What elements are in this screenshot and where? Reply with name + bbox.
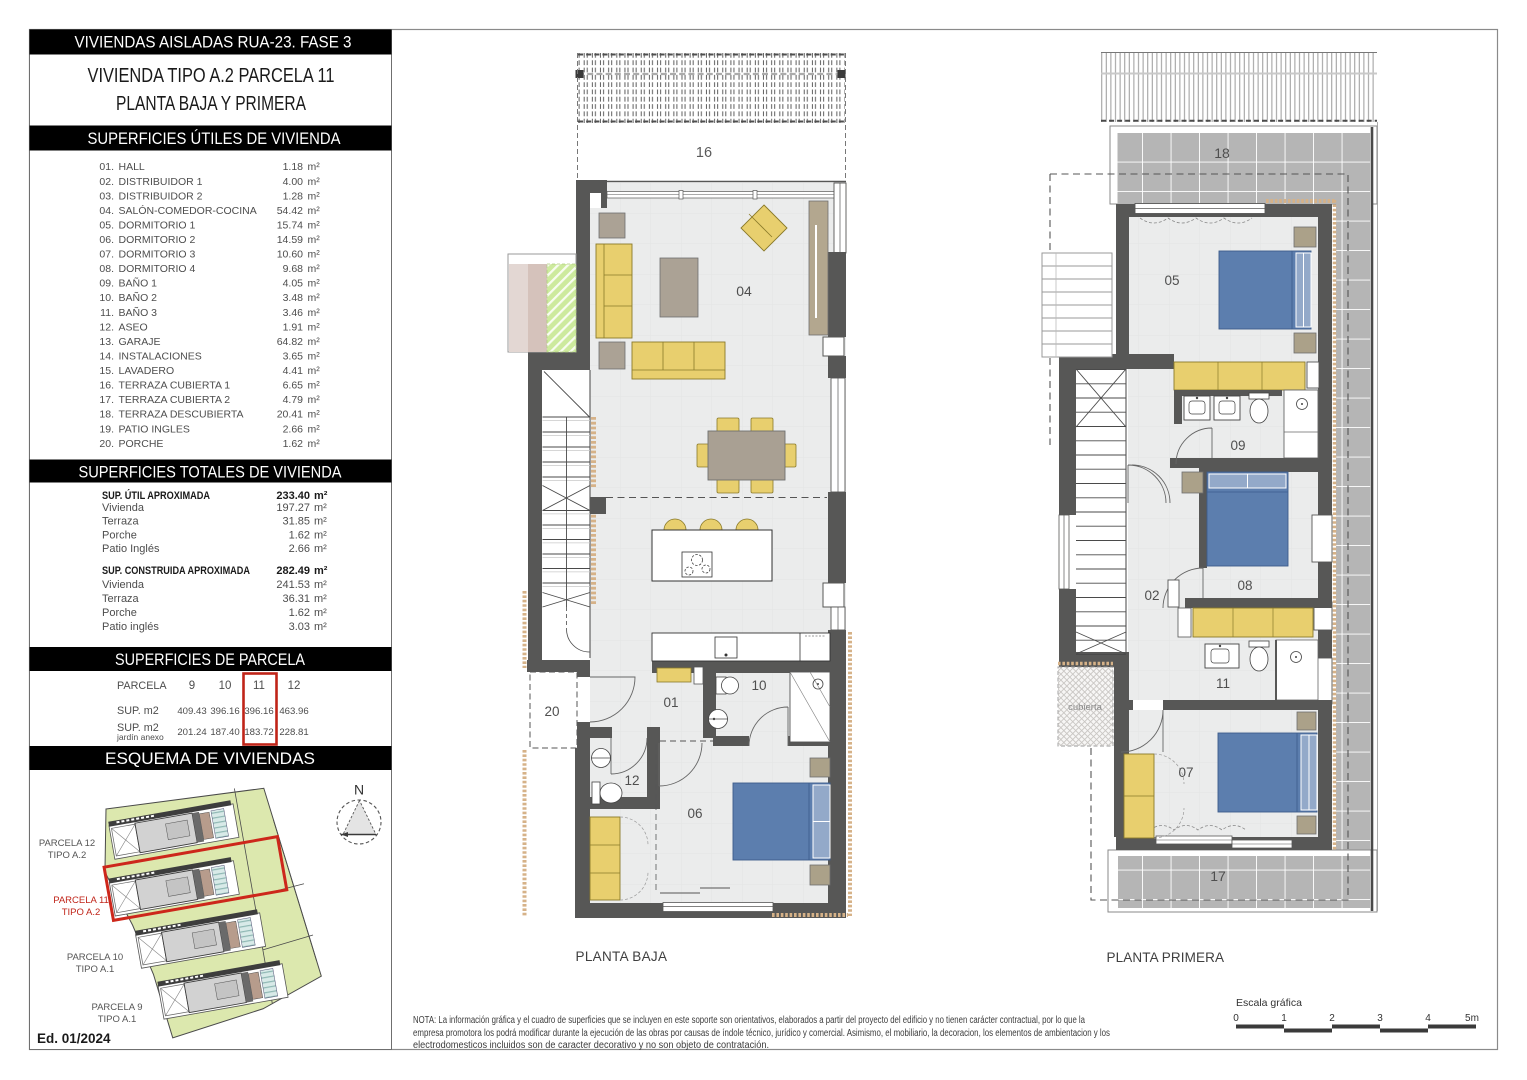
svg-text:TIPO A.2: TIPO A.2 — [62, 907, 101, 918]
svg-text:2.66: 2.66 — [289, 543, 310, 555]
svg-text:02.: 02. — [99, 176, 114, 188]
svg-text:SALÓN-COMEDOR-COCINA: SALÓN-COMEDOR-COCINA — [119, 204, 257, 217]
svg-text:SUP. m2: SUP. m2 — [117, 705, 159, 717]
svg-text:m²: m² — [308, 249, 321, 261]
svg-text:1.18: 1.18 — [283, 161, 304, 173]
svg-text:m²: m² — [308, 234, 321, 246]
svg-text:396.16: 396.16 — [210, 706, 239, 717]
svg-text:6.65: 6.65 — [283, 380, 304, 392]
svg-text:08: 08 — [1237, 578, 1252, 593]
svg-text:1.62: 1.62 — [289, 607, 310, 619]
svg-text:Ed. 01/2024: Ed. 01/2024 — [37, 1031, 111, 1046]
svg-text:m²: m² — [308, 205, 321, 217]
svg-text:06.: 06. — [99, 234, 114, 246]
svg-text:TERRAZA CUBIERTA 1: TERRAZA CUBIERTA 1 — [119, 380, 231, 392]
svg-text:Patio Inglés: Patio Inglés — [102, 543, 160, 555]
svg-text:04: 04 — [736, 283, 752, 299]
svg-text:3.46: 3.46 — [283, 307, 304, 319]
svg-text:TIPO A.2: TIPO A.2 — [48, 850, 87, 861]
svg-text:9: 9 — [189, 680, 195, 692]
svg-text:15.74: 15.74 — [277, 219, 303, 231]
svg-text:PATIO INGLES: PATIO INGLES — [119, 423, 190, 435]
svg-text:m²: m² — [308, 307, 321, 319]
svg-text:3: 3 — [1377, 1013, 1383, 1024]
svg-text:09: 09 — [1230, 438, 1245, 453]
svg-text:ASEO: ASEO — [119, 321, 148, 333]
svg-text:14.59: 14.59 — [277, 234, 303, 246]
svg-text:1.62: 1.62 — [283, 438, 304, 450]
svg-text:PORCHE: PORCHE — [119, 438, 164, 450]
svg-text:07.: 07. — [99, 249, 114, 261]
svg-text:PARCELA 12: PARCELA 12 — [39, 838, 95, 849]
svg-text:04.: 04. — [99, 205, 114, 217]
svg-text:12.: 12. — [99, 321, 114, 333]
svg-text:NOTA: La información gráfica y: NOTA: La información gráfica y el cuadro… — [413, 1015, 1085, 1026]
svg-text:BAÑO 3: BAÑO 3 — [119, 306, 158, 319]
svg-text:GARAJE: GARAJE — [119, 336, 161, 348]
svg-text:INSTALACIONES: INSTALACIONES — [119, 351, 202, 363]
svg-text:PLANTA BAJA: PLANTA BAJA — [576, 949, 669, 964]
svg-text:VIVIENDA TIPO A.2 PARCELA 11: VIVIENDA TIPO A.2 PARCELA 11 — [88, 65, 335, 87]
svg-text:14.: 14. — [99, 351, 114, 363]
svg-text:m²: m² — [308, 190, 321, 202]
svg-text:m²: m² — [314, 502, 327, 514]
svg-text:4.05: 4.05 — [283, 278, 304, 290]
svg-text:06: 06 — [687, 806, 702, 821]
svg-text:09.: 09. — [99, 278, 114, 290]
svg-text:2: 2 — [1329, 1013, 1335, 1024]
svg-text:m²: m² — [314, 565, 328, 577]
svg-text:m²: m² — [308, 321, 321, 333]
svg-text:Porche: Porche — [102, 530, 137, 542]
svg-text:m²: m² — [314, 530, 327, 542]
svg-text:16.: 16. — [99, 380, 114, 392]
svg-text:11: 11 — [1216, 676, 1230, 691]
svg-text:1.62: 1.62 — [289, 530, 310, 542]
svg-text:0: 0 — [1233, 1013, 1239, 1024]
svg-text:m²: m² — [314, 593, 327, 605]
svg-text:DISTRIBUIDOR 1: DISTRIBUIDOR 1 — [119, 176, 203, 188]
svg-text:20.41: 20.41 — [277, 409, 303, 421]
svg-text:12: 12 — [288, 680, 301, 692]
svg-text:4.00: 4.00 — [283, 176, 304, 188]
svg-text:10.: 10. — [99, 292, 114, 304]
svg-text:m²: m² — [308, 365, 321, 377]
svg-text:07: 07 — [1178, 765, 1193, 780]
svg-text:m²: m² — [314, 543, 327, 555]
svg-text:Vivienda: Vivienda — [102, 579, 145, 591]
svg-text:08.: 08. — [99, 263, 114, 275]
svg-text:396.16: 396.16 — [244, 706, 273, 717]
svg-text:electrodomesticos incluidos so: electrodomesticos incluidos son de carac… — [413, 1040, 769, 1051]
svg-text:PLANTA BAJA Y PRIMERA: PLANTA BAJA Y PRIMERA — [116, 93, 307, 115]
svg-text:PARCELA 11: PARCELA 11 — [53, 895, 109, 906]
svg-text:m²: m² — [308, 351, 321, 363]
svg-text:SUPERFICIES ÚTILES DE VIVIENDA: SUPERFICIES ÚTILES DE VIVIENDA — [88, 129, 342, 148]
svg-text:DORMITORIO 2: DORMITORIO 2 — [119, 234, 196, 246]
svg-text:DORMITORIO 3: DORMITORIO 3 — [119, 249, 196, 261]
svg-text:3.48: 3.48 — [283, 292, 304, 304]
svg-text:02: 02 — [1144, 588, 1159, 603]
svg-text:LAVADERO: LAVADERO — [119, 365, 175, 377]
svg-text:PARCELA 10: PARCELA 10 — [67, 952, 123, 963]
svg-text:m²: m² — [308, 423, 321, 435]
svg-text:m²: m² — [314, 579, 327, 591]
svg-text:Porche: Porche — [102, 607, 137, 619]
svg-text:m²: m² — [308, 380, 321, 392]
svg-text:m²: m² — [308, 278, 321, 290]
svg-text:463.96: 463.96 — [279, 706, 308, 717]
svg-text:3.03: 3.03 — [289, 621, 310, 633]
svg-text:m²: m² — [314, 490, 328, 502]
svg-text:5m: 5m — [1465, 1013, 1479, 1024]
svg-text:1.91: 1.91 — [283, 321, 304, 333]
svg-text:Terraza: Terraza — [102, 516, 140, 528]
svg-text:03.: 03. — [99, 190, 114, 202]
svg-text:17.: 17. — [99, 394, 114, 406]
svg-text:9.68: 9.68 — [283, 263, 304, 275]
svg-text:m²: m² — [308, 219, 321, 231]
svg-text:05: 05 — [1164, 273, 1179, 288]
svg-text:m²: m² — [308, 161, 321, 173]
svg-text:64.82: 64.82 — [277, 336, 303, 348]
svg-text:228.81: 228.81 — [279, 727, 308, 738]
svg-text:TERRAZA CUBIERTA 2: TERRAZA CUBIERTA 2 — [119, 394, 231, 406]
svg-text:233.40: 233.40 — [276, 490, 310, 502]
svg-text:TIPO A.1: TIPO A.1 — [98, 1014, 137, 1025]
svg-text:PARCELA 9: PARCELA 9 — [91, 1002, 142, 1013]
svg-text:4: 4 — [1425, 1013, 1431, 1024]
svg-text:jardín anexo: jardín anexo — [116, 732, 164, 742]
svg-text:2.66: 2.66 — [283, 423, 304, 435]
svg-text:11.: 11. — [100, 307, 114, 319]
svg-text:BAÑO 1: BAÑO 1 — [119, 277, 158, 290]
svg-text:197.27: 197.27 — [276, 502, 310, 514]
svg-text:19.: 19. — [99, 423, 114, 435]
svg-text:m²: m² — [308, 263, 321, 275]
svg-text:12: 12 — [624, 773, 639, 788]
svg-text:SUPERFICIES DE PARCELA: SUPERFICIES DE PARCELA — [115, 650, 306, 669]
svg-text:18.: 18. — [99, 409, 114, 421]
svg-text:201.24: 201.24 — [177, 727, 207, 738]
svg-text:DORMITORIO 4: DORMITORIO 4 — [119, 263, 196, 275]
svg-text:10: 10 — [219, 680, 232, 692]
svg-text:11: 11 — [253, 680, 265, 692]
svg-text:m²: m² — [314, 516, 327, 528]
svg-text:10: 10 — [751, 678, 766, 693]
svg-text:1: 1 — [1281, 1013, 1287, 1024]
svg-text:empresa promotora los podrá mo: empresa promotora los podrá modificar du… — [413, 1028, 1110, 1039]
svg-text:36.31: 36.31 — [282, 593, 310, 605]
svg-text:01: 01 — [663, 695, 678, 710]
svg-text:16: 16 — [696, 145, 712, 161]
svg-text:TIPO A.1: TIPO A.1 — [76, 964, 115, 975]
svg-text:m²: m² — [308, 394, 321, 406]
svg-text:183.72: 183.72 — [244, 727, 273, 738]
svg-text:Terraza: Terraza — [102, 593, 140, 605]
svg-text:54.42: 54.42 — [277, 205, 303, 217]
svg-text:15.: 15. — [99, 365, 114, 377]
svg-text:m²: m² — [308, 409, 321, 421]
svg-text:20: 20 — [544, 704, 559, 719]
svg-text:cubierta: cubierta — [1068, 702, 1103, 713]
svg-text:m²: m² — [314, 621, 327, 633]
svg-text:SUP. CONSTRUIDA APROXIMADA: SUP. CONSTRUIDA APROXIMADA — [102, 565, 250, 577]
svg-text:05.: 05. — [99, 219, 114, 231]
svg-text:m²: m² — [308, 176, 321, 188]
svg-text:241.53: 241.53 — [276, 579, 310, 591]
svg-text:ESQUEMA DE VIVIENDAS: ESQUEMA DE VIVIENDAS — [105, 749, 315, 768]
svg-text:PLANTA PRIMERA: PLANTA PRIMERA — [1107, 950, 1226, 965]
svg-text:Vivienda: Vivienda — [102, 502, 145, 514]
svg-text:TERRAZA DESCUBIERTA: TERRAZA DESCUBIERTA — [119, 409, 244, 421]
svg-text:SUPERFICIES TOTALES DE VIVIEND: SUPERFICIES TOTALES DE VIVIENDA — [79, 463, 343, 482]
svg-text:m²: m² — [314, 607, 327, 619]
svg-text:m²: m² — [308, 336, 321, 348]
svg-text:N: N — [354, 782, 364, 798]
svg-text:3.65: 3.65 — [283, 351, 304, 363]
svg-text:409.43: 409.43 — [177, 706, 206, 717]
svg-text:20.: 20. — [99, 438, 114, 450]
svg-text:01.: 01. — [99, 161, 114, 173]
svg-text:282.49: 282.49 — [276, 565, 310, 577]
svg-text:BAÑO 2: BAÑO 2 — [119, 291, 158, 304]
svg-text:VIVIENDAS AISLADAS RUA-23. FAS: VIVIENDAS AISLADAS RUA-23. FASE 3 — [75, 33, 352, 52]
svg-text:187.40: 187.40 — [210, 727, 239, 738]
svg-text:18: 18 — [1214, 145, 1230, 161]
svg-text:10.60: 10.60 — [277, 249, 303, 261]
svg-text:m²: m² — [308, 292, 321, 304]
svg-text:Escala gráfica: Escala gráfica — [1236, 997, 1302, 1009]
svg-text:SUP. ÚTIL APROXIMADA: SUP. ÚTIL APROXIMADA — [102, 489, 210, 502]
svg-text:31.85: 31.85 — [282, 516, 310, 528]
svg-text:1.28: 1.28 — [283, 190, 304, 202]
svg-text:4.79: 4.79 — [283, 394, 304, 406]
svg-text:m²: m² — [308, 438, 321, 450]
svg-text:PARCELA: PARCELA — [117, 680, 167, 692]
svg-text:13.: 13. — [99, 336, 114, 348]
svg-text:4.41: 4.41 — [283, 365, 304, 377]
svg-text:HALL: HALL — [119, 161, 145, 173]
svg-text:Patio inglés: Patio inglés — [102, 621, 159, 633]
svg-text:DORMITORIO 1: DORMITORIO 1 — [119, 219, 196, 231]
svg-text:DISTRIBUIDOR 2: DISTRIBUIDOR 2 — [119, 190, 203, 202]
svg-text:17: 17 — [1210, 868, 1226, 884]
